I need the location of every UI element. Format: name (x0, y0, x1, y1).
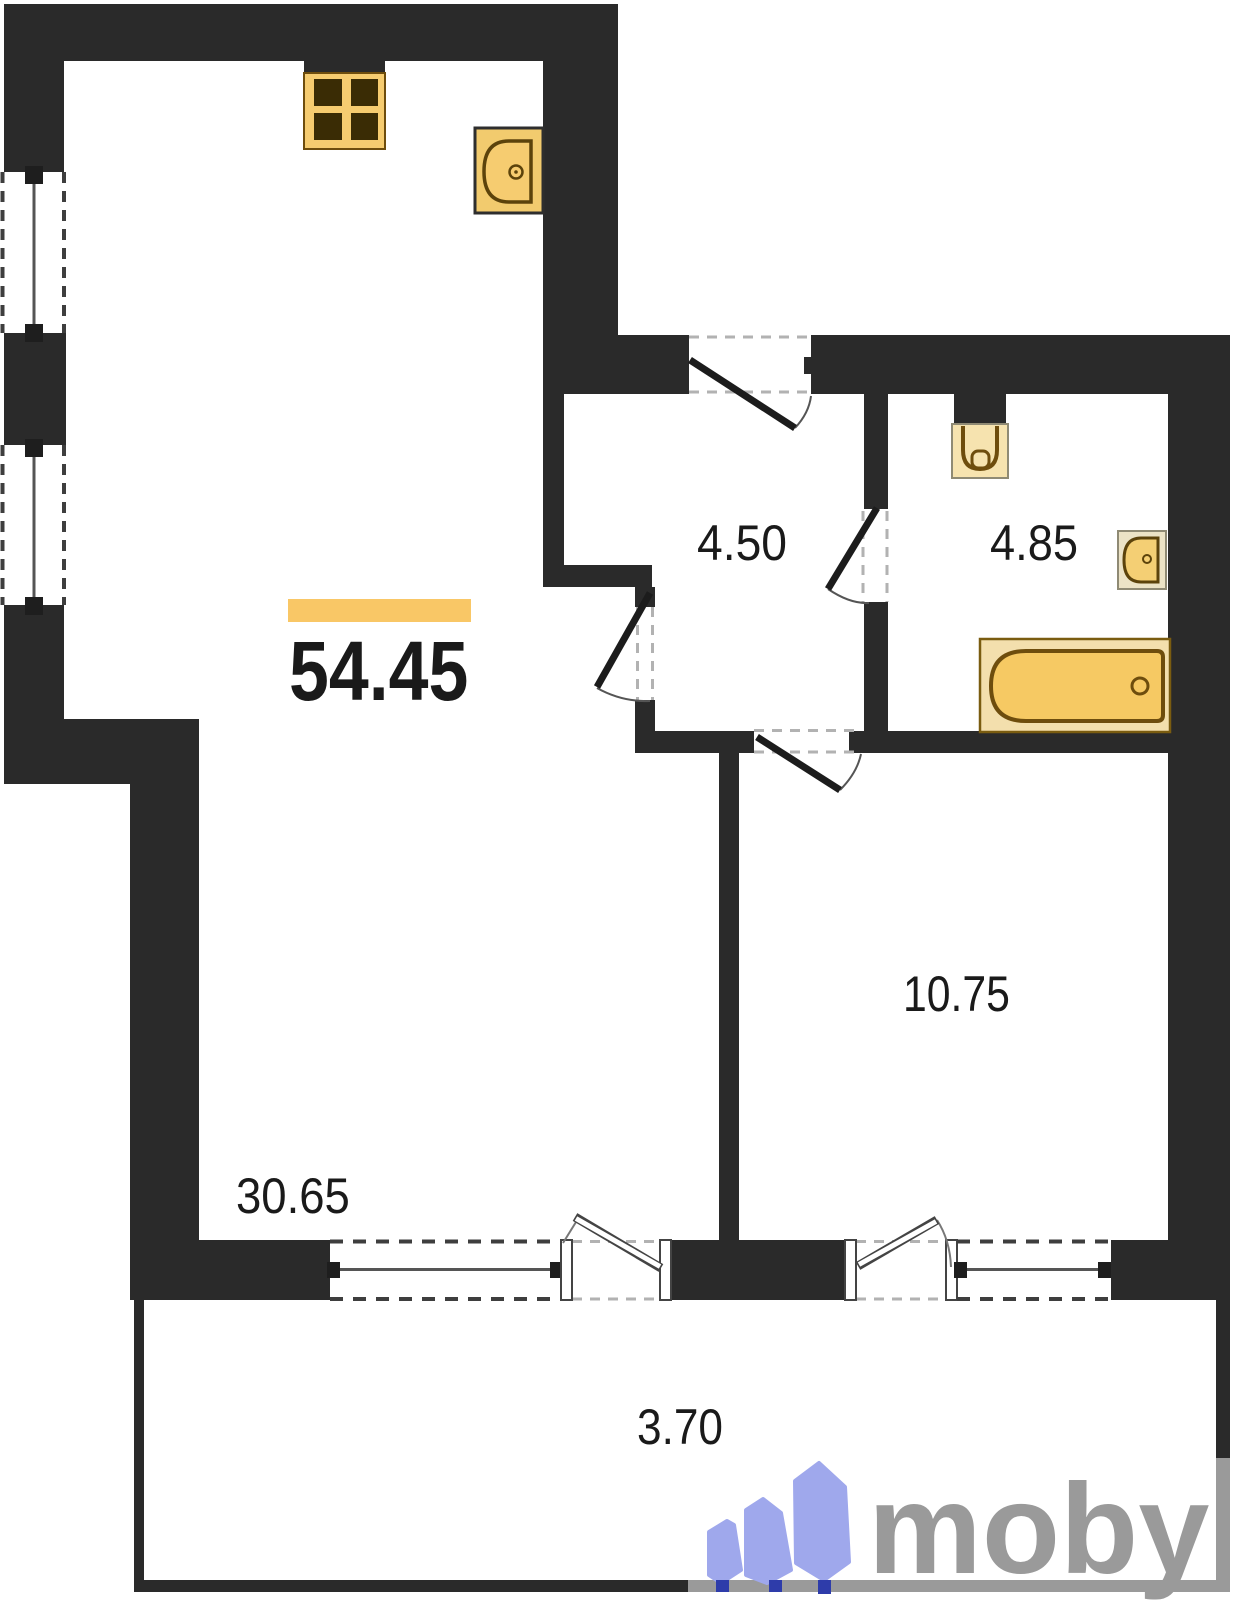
svg-text:4.85: 4.85 (990, 516, 1078, 572)
svg-text:10.75: 10.75 (903, 966, 1010, 1022)
svg-text:54.45: 54.45 (289, 624, 468, 719)
svg-text:3.70: 3.70 (637, 1398, 723, 1454)
svg-text:30.65: 30.65 (236, 1169, 350, 1224)
svg-text:4.50: 4.50 (697, 515, 787, 571)
svg-text:moby: moby (868, 1458, 1209, 1600)
